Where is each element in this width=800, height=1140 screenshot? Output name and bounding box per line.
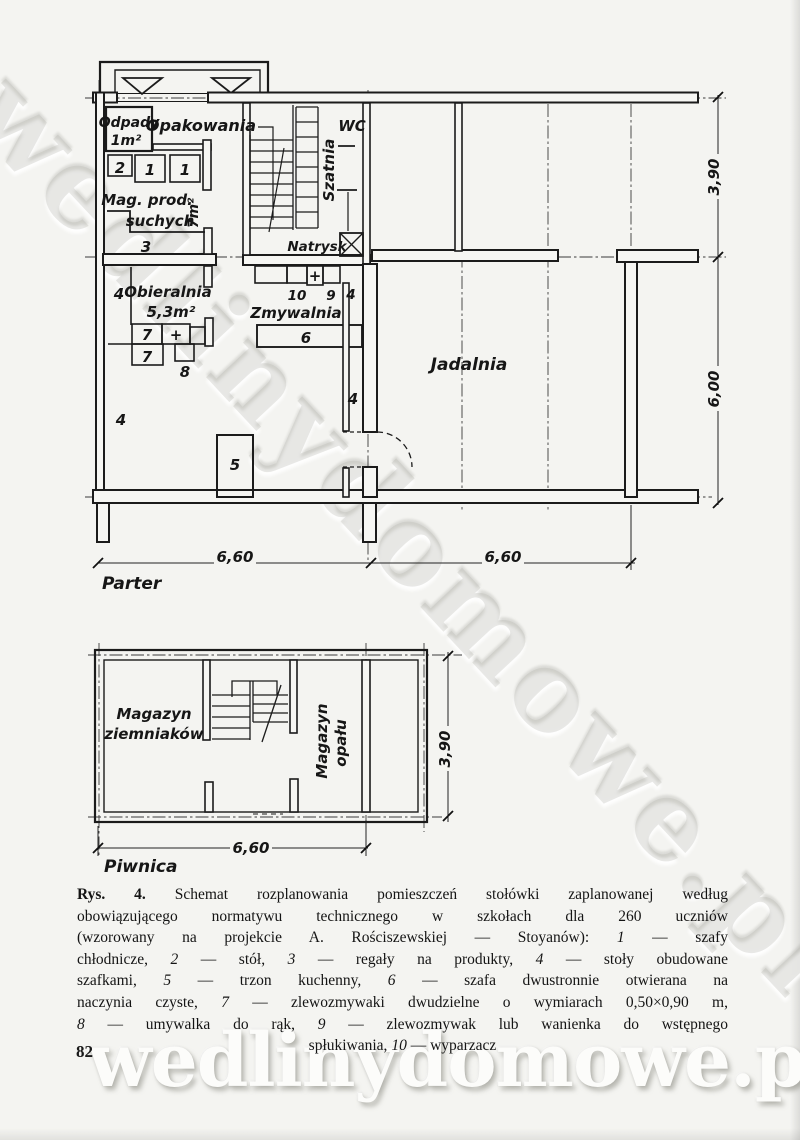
equip-label-3: 3 <box>141 238 151 256</box>
equip-label-4: 4 <box>113 285 124 303</box>
dim-label-390-basement: 3,90 <box>436 730 454 767</box>
room-label-opakowania: Opakowania <box>146 116 256 135</box>
equip-label-1: 1 <box>145 161 155 179</box>
caption-line: spłukiwania, 10 — wyparzacz <box>77 1035 728 1057</box>
room-label-zmywalnia: Zmywalnia <box>249 304 341 322</box>
figure-caption: Rys. 4. Schemat rozplanowania pomieszcze… <box>77 884 728 1057</box>
caption-line: szafkami, 5 — trzon kuchenny, 6 — szafa … <box>77 970 728 992</box>
room-area-mag-prod: 7m² <box>186 197 202 228</box>
equip-label-7: 7 <box>142 326 153 344</box>
ground-floor-porch <box>100 62 268 95</box>
dim-label-660-left: 6,60 <box>216 548 253 566</box>
equip-label-2: 2 <box>115 159 125 177</box>
scan-edge-shadow-bottom <box>0 1128 800 1140</box>
room-label-opalu-1: Magazyn <box>313 703 331 778</box>
equip-label-5: 5 <box>230 456 240 474</box>
room-label-mag-prod: Mag. prod. <box>101 191 193 209</box>
equip-symbol-plus: + <box>309 267 322 285</box>
equip-label-4: 4 <box>115 411 126 429</box>
page-number: 82 <box>76 1042 93 1062</box>
caption-line: naczynia czyste, 7 — zlewozmywaki dwudzi… <box>77 992 728 1014</box>
ground-floor-door <box>343 432 412 467</box>
caption-line: obowiązującego normatywu technicznego w … <box>77 906 728 928</box>
floor-label-piwnica: Piwnica <box>104 857 177 877</box>
room-area-obieralnia: 5,3m² <box>147 303 196 321</box>
room-label-ziemniakow-2: ziemniaków <box>103 725 203 743</box>
basement-axes <box>88 643 462 856</box>
caption-line: 8 — umywalka do rąk, 9 — zlewozmywak lub… <box>77 1014 728 1036</box>
room-label-jadalnia: Jadalnia <box>428 355 508 375</box>
room-label-ziemniakow-1: Magazyn <box>116 705 191 723</box>
room-label-obieralnia: Obieralnia <box>124 283 211 301</box>
equip-symbol-plus: + <box>170 326 183 344</box>
dim-label-660-right: 6,60 <box>484 548 521 566</box>
room-label-szatnia: Szatnia <box>320 139 338 202</box>
equip-label-4: 4 <box>345 287 355 303</box>
dim-label-660-basement: 6,60 <box>232 839 269 857</box>
caption-line: Rys. 4. Schemat rozplanowania pomieszcze… <box>77 884 728 906</box>
equip-label-1: 1 <box>180 161 190 179</box>
room-label-opalu-2: opału <box>332 719 350 767</box>
equip-label-9: 9 <box>326 288 335 304</box>
dim-label-600: 6,00 <box>705 370 723 407</box>
equip-label-4: 4 <box>347 390 358 408</box>
room-label-mag-prod-2: suchych <box>126 212 195 230</box>
equip-label-8: 8 <box>180 363 190 381</box>
caption-line: chłodnicze, 2 — stół, 3 — regały na prod… <box>77 949 728 971</box>
room-label-natrysk: Natrysk <box>287 239 347 255</box>
basement-stairs <box>212 681 288 742</box>
ground-floor-stairs <box>250 105 318 232</box>
floor-label-parter: Parter <box>102 574 163 594</box>
floor-plans-figure: Odpady 1m² Opakowania 2 1 1 Mag. prod. s… <box>0 0 800 880</box>
equip-label-6: 6 <box>301 329 311 347</box>
equip-label-7: 7 <box>142 348 153 366</box>
equip-label-10: 10 <box>288 288 307 304</box>
basement-dimensions <box>93 651 456 857</box>
room-label-wc: WC <box>338 117 366 135</box>
caption-line: (wzorowany na projekcie A. Rościszewskie… <box>77 927 728 949</box>
room-area-odpady: 1m² <box>111 133 142 149</box>
dim-label-390: 3,90 <box>705 158 723 195</box>
